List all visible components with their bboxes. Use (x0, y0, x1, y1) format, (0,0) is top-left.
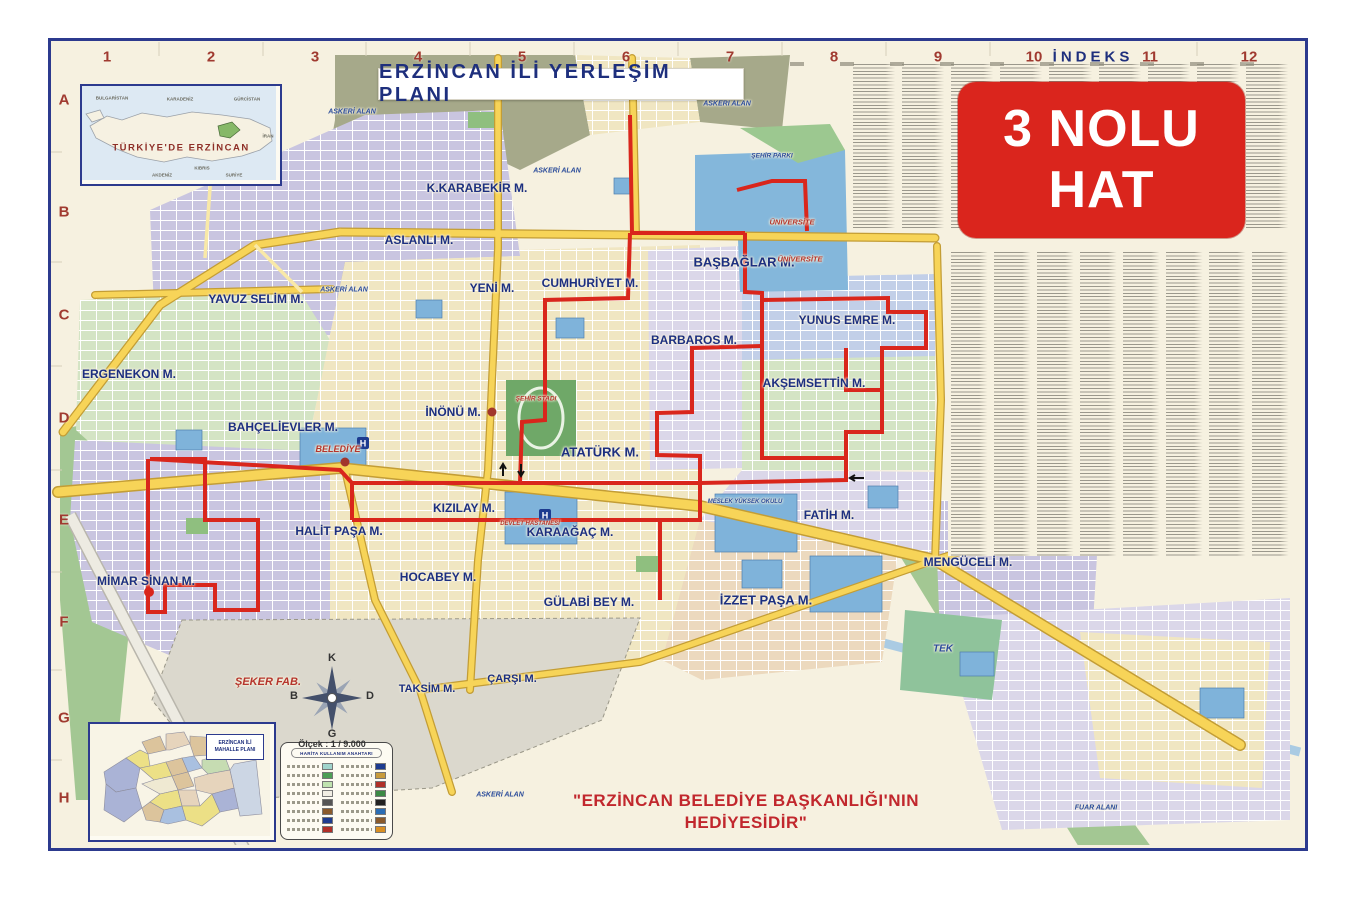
legend-symbol (375, 763, 386, 770)
legend-row (287, 780, 333, 789)
dedication-text: "ERZİNCAN BELEDİYE BAŞKANLIĞI'NIN HEDİYE… (573, 790, 919, 834)
legend-title: HARİTA KULLANIM ANAHTARI (291, 748, 382, 758)
legend-row (341, 771, 387, 780)
svg-text:H: H (360, 439, 367, 449)
legend-symbol (375, 799, 386, 806)
index-column (951, 252, 990, 556)
turkey-locator-inset: TÜRKİYE'DE ERZİNCAN BULGARİSTANKARADENİZ… (80, 84, 282, 186)
legend-symbol (375, 808, 386, 815)
legend-symbol (375, 817, 386, 824)
dedication-line-1: "ERZİNCAN BELEDİYE BAŞKANLIĞI'NIN (573, 790, 919, 812)
map-label: AKDENİZ (152, 173, 172, 178)
legend-label-fineprint (341, 765, 373, 768)
map-label: BULGARİSTAN (96, 96, 128, 101)
legend-left-column (287, 762, 333, 834)
compass-star-graphic (292, 658, 372, 738)
map-label: KARADENİZ (167, 97, 194, 102)
legend-symbol (375, 790, 386, 797)
index-column-headers (790, 62, 1290, 66)
street-index-main (948, 246, 1294, 556)
svg-text:H: H (542, 511, 549, 521)
legend-label-fineprint (341, 828, 373, 831)
map-scale-text: Ölçek : 1 / 9.000 (298, 739, 366, 749)
legend-label-fineprint (287, 765, 319, 768)
legend-row (341, 807, 387, 816)
compass-east-label: D (366, 690, 374, 702)
legend-row (287, 798, 333, 807)
legend-label-fineprint (287, 783, 319, 786)
legend-label-fineprint (341, 792, 373, 795)
compass-west-label: B (290, 690, 298, 702)
legend-label-fineprint (287, 792, 319, 795)
legend-row (341, 762, 387, 771)
district-inset-label-1: ERZİNCAN İLİ (218, 740, 251, 747)
legend-row (341, 825, 387, 834)
legend-symbol (322, 772, 333, 779)
legend-label-fineprint (287, 828, 319, 831)
compass-north-label: K (328, 652, 336, 664)
stadium (506, 380, 576, 456)
legend-label-fineprint (341, 783, 373, 786)
legend-row (287, 771, 333, 780)
legend-label-fineprint (287, 810, 319, 813)
legend-row (287, 762, 333, 771)
legend-symbol (375, 772, 386, 779)
route-terminus-dot (144, 587, 154, 597)
turkey-country-labels: BULGARİSTANKARADENİZGÜRCİSTANİRANAKDENİZ… (82, 86, 280, 184)
legend-label-fineprint (287, 801, 319, 804)
legend-symbol (375, 826, 386, 833)
dedication-line-2: HEDİYESİDİR" (573, 812, 919, 834)
legend-row (341, 798, 387, 807)
map-legend: HARİTA KULLANIM ANAHTARI (280, 742, 393, 840)
route-3-badge: 3 NOLU HAT (958, 82, 1245, 238)
index-column (853, 64, 898, 228)
map-label: İRAN (263, 134, 274, 139)
legend-symbol (322, 790, 333, 797)
legend-row (341, 780, 387, 789)
legend-symbol (322, 763, 333, 770)
legend-row (341, 789, 387, 798)
district-inset-label-box: ERZİNCAN İLİ MAHALLE PLANI (206, 734, 264, 760)
legend-row (287, 816, 333, 825)
map-title-text: ERZİNCAN İLİ YERLEŞİM PLANI (379, 61, 743, 107)
legend-label-fineprint (341, 819, 373, 822)
poster-page: H H İNDEKS 12345 (0, 0, 1346, 900)
legend-right-column (341, 762, 387, 834)
map-title-banner: ERZİNCAN İLİ YERLEŞİM PLANI (378, 68, 744, 100)
legend-symbol (322, 781, 333, 788)
district-inset-label-2: MAHALLE PLANI (215, 747, 256, 754)
map-label: GÜRCİSTAN (234, 97, 260, 102)
index-title: İNDEKS (1053, 49, 1134, 66)
legend-label-fineprint (287, 819, 319, 822)
legend-row (341, 816, 387, 825)
legend-row (287, 825, 333, 834)
legend-row (287, 789, 333, 798)
legend-label-fineprint (287, 774, 319, 777)
badge-line-2: HAT (1048, 160, 1154, 221)
legend-symbol (322, 799, 333, 806)
legend-symbol (322, 826, 333, 833)
legend-symbol (322, 817, 333, 824)
legend-symbol (322, 808, 333, 815)
compass-rose: K D G B (292, 658, 372, 738)
badge-line-1: 3 NOLU (1003, 99, 1200, 160)
map-label: SURİYE (226, 173, 243, 178)
map-label: KIBRIS (194, 166, 209, 171)
legend-label-fineprint (341, 810, 373, 813)
district-plan-inset: ERZİNCAN İLİ MAHALLE PLANI (88, 722, 276, 842)
legend-label-fineprint (341, 774, 373, 777)
legend-label-fineprint (341, 801, 373, 804)
legend-row (287, 807, 333, 816)
legend-symbol (375, 781, 386, 788)
